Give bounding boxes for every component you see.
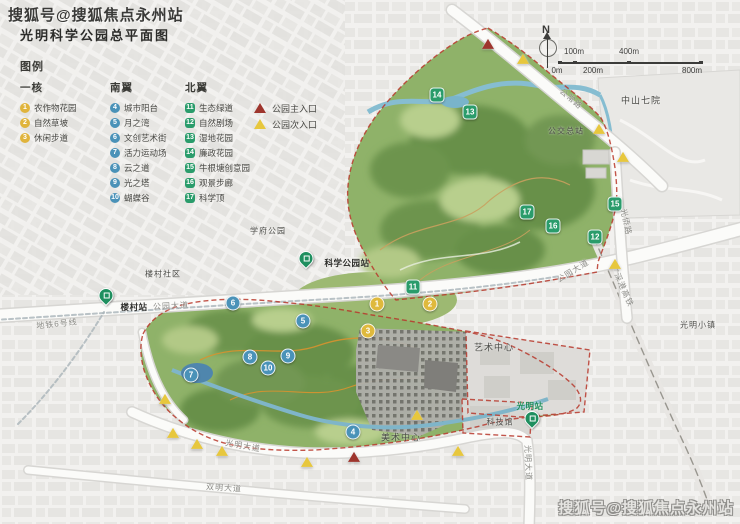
- legend-number-icon: 15: [185, 163, 195, 173]
- legend-item-label: 自然剧场: [199, 117, 233, 129]
- legend-item-label: 月之湾: [124, 117, 150, 129]
- secondary-entrance-icon: [216, 429, 228, 456]
- legend-number-icon: 17: [185, 193, 195, 203]
- park-secondary-entrance: [301, 440, 313, 458]
- map-marker-6: 6: [226, 296, 241, 311]
- map-marker-12: 12: [588, 230, 603, 245]
- map-marker-9: 9: [281, 349, 296, 364]
- scale-bar: 100m400m0m200m800m: [548, 44, 708, 78]
- legend-item-4: 4城市阳台: [110, 100, 167, 115]
- legend-item-2: 2自然草坡: [20, 115, 77, 130]
- scale-tick: [627, 61, 631, 65]
- secondary-entrance-icon: [617, 135, 629, 162]
- secondary-entrance-icon: [191, 422, 203, 449]
- park-secondary-entrance: [216, 429, 228, 447]
- map-label: 楼村社区: [145, 269, 181, 280]
- legend-item-label: 城市阳台: [124, 102, 158, 114]
- legend-number-icon: 14: [185, 148, 195, 158]
- legend-item-label: 科学顶: [199, 192, 225, 204]
- scale-tick: [558, 61, 562, 65]
- scale-label: 0m: [551, 66, 562, 75]
- legend-item-label: 牛根塘创意园: [199, 162, 250, 174]
- legend-number-icon: 4: [110, 103, 120, 113]
- secondary-entrance-icon: [411, 393, 423, 420]
- legend-entrance-sec: 公园次入口: [254, 116, 317, 132]
- main-entrance-icon: [348, 435, 360, 462]
- legend-item-15: 15牛根塘创意园: [185, 160, 250, 175]
- map-label: 地铁6号线: [36, 316, 78, 331]
- secondary-entrance-icon: [167, 411, 179, 438]
- legend-number-icon: 9: [110, 178, 120, 188]
- map-label: 中山七院: [621, 94, 661, 107]
- map-marker-2: 2: [423, 297, 438, 312]
- map-label: 双明大道: [206, 481, 243, 494]
- legend-group-core: 一核1农作物花园2自然草坡3休闲步道: [20, 80, 77, 145]
- map-marker-10: 10: [261, 361, 276, 376]
- park-secondary-entrance: [593, 107, 605, 125]
- park-main-entrance: [348, 435, 360, 453]
- scale-label: 400m: [619, 47, 639, 56]
- map-label: 楼村站: [120, 301, 147, 313]
- map-marker-17: 17: [520, 205, 535, 220]
- legend-number-icon: 11: [185, 103, 195, 113]
- map-label: 公园大道: [153, 300, 190, 313]
- legend-item-14: 14廉政花园: [185, 145, 250, 160]
- page-title: 光明科学公园总平面图: [20, 25, 170, 44]
- scale-label: 200m: [583, 66, 603, 75]
- map-marker-5: 5: [296, 314, 311, 329]
- map-label: 科学公园站: [324, 257, 369, 269]
- park-secondary-entrance: [617, 135, 629, 153]
- secondary-entrance-icon: [452, 429, 464, 456]
- plan-map-screenshot: 搜狐号@搜狐焦点永州站 光明科学公园总平面图 图例 一核1农作物花园2自然草坡3…: [0, 0, 740, 524]
- map-label: 公交总站: [548, 126, 584, 137]
- map-marker-14: 14: [430, 88, 445, 103]
- legend-item-label: 活力运动场: [124, 147, 167, 159]
- map-marker-13: 13: [463, 105, 478, 120]
- legend-item-label: 自然草坡: [34, 117, 68, 129]
- legend-item-1: 1农作物花园: [20, 100, 77, 115]
- legend-item-label: 休闲步道: [34, 132, 68, 144]
- legend-item-7: 7活力运动场: [110, 145, 167, 160]
- secondary-entrance-icon: [301, 440, 313, 467]
- entrance-label: 公园主入口: [272, 102, 317, 115]
- legend-number-icon: 8: [110, 163, 120, 173]
- secondary-entrance-icon: [517, 37, 529, 64]
- map-label: 美术中心: [381, 431, 421, 444]
- north-arrowhead-icon: [543, 32, 551, 39]
- legend-item-8: 8云之道: [110, 160, 167, 175]
- park-secondary-entrance: [167, 411, 179, 429]
- watermark-top: 搜狐号@搜狐焦点永州站: [8, 4, 184, 25]
- legend-number-icon: 12: [185, 118, 195, 128]
- legend-item-label: 蝴蝶谷: [124, 192, 150, 204]
- map-marker-16: 16: [546, 219, 561, 234]
- map-label: 公园大道: [555, 257, 591, 285]
- legend-number-icon: 1: [20, 103, 30, 113]
- legend-item-label: 农作物花园: [34, 102, 77, 114]
- legend-item-5: 5月之湾: [110, 115, 167, 130]
- legend: 图例 一核1农作物花园2自然草坡3休闲步道 南翼4城市阳台5月之湾6文创艺术街7…: [16, 58, 346, 208]
- map-label: 艺术中心: [474, 341, 514, 354]
- legend-entrances: 公园主入口公园次入口: [254, 100, 317, 132]
- park-main-entrance: [482, 22, 494, 40]
- park-secondary-entrance: [411, 393, 423, 411]
- secondary-entrance-icon: [593, 107, 605, 134]
- legend-item-label: 云之道: [124, 162, 150, 174]
- scale-tick: [699, 61, 703, 65]
- legend-number-icon: 10: [110, 193, 120, 203]
- map-label: 光明大道: [522, 445, 534, 481]
- entrance-label: 公园次入口: [272, 118, 317, 131]
- legend-item-label: 光之塔: [124, 177, 150, 189]
- entrance-triangle-icon: [254, 103, 266, 113]
- legend-item-11: 11生态绿道: [185, 100, 250, 115]
- map-marker-3: 3: [361, 324, 376, 339]
- map-label: 公常路: [557, 86, 585, 112]
- map-marker-11: 11: [406, 280, 421, 295]
- scale-tick: [573, 61, 577, 65]
- legend-item-label: 廉政花园: [199, 147, 233, 159]
- map-label: 广深港高铁: [608, 263, 636, 309]
- map-label: 光明大道: [224, 437, 261, 454]
- main-entrance-icon: [482, 22, 494, 49]
- map-label: 光侨路: [618, 208, 634, 237]
- legend-item-12: 12自然剧场: [185, 115, 250, 130]
- legend-number-icon: 13: [185, 133, 195, 143]
- map-label: 科技馆: [487, 417, 514, 428]
- watermark-bottom: 搜狐号@搜狐焦点永州站: [558, 497, 734, 518]
- legend-number-icon: 2: [20, 118, 30, 128]
- legend-item-13: 13湿地花园: [185, 130, 250, 145]
- map-label: 学府公园: [250, 226, 286, 237]
- park-secondary-entrance: [609, 242, 621, 260]
- legend-number-icon: 6: [110, 133, 120, 143]
- legend-entrance-main: 公园主入口: [254, 100, 317, 116]
- map-label: 光明小镇: [680, 320, 716, 331]
- legend-item-16: 16观景步廊: [185, 175, 250, 190]
- entrance-triangle-icon: [254, 119, 266, 129]
- legend-group-north: 北翼11生态绿道12自然剧场13湿地花园14廉政花园15牛根塘创意园16观景步廊…: [185, 80, 250, 205]
- park-secondary-entrance: [452, 429, 464, 447]
- legend-number-icon: 7: [110, 148, 120, 158]
- legend-number-icon: 3: [20, 133, 30, 143]
- map-marker-15: 15: [608, 197, 623, 212]
- legend-item-label: 湿地花园: [199, 132, 233, 144]
- legend-number-icon: 5: [110, 118, 120, 128]
- map-marker-1: 1: [370, 297, 385, 312]
- legend-heading: 图例: [20, 58, 44, 74]
- map-marker-8: 8: [243, 350, 258, 365]
- map-marker-7: 7: [184, 368, 199, 383]
- legend-item-label: 生态绿道: [199, 102, 233, 114]
- park-secondary-entrance: [517, 37, 529, 55]
- legend-group-south: 南翼4城市阳台5月之湾6文创艺术街7活力运动场8云之道9光之塔10蝴蝶谷: [110, 80, 167, 205]
- secondary-entrance-icon: [159, 377, 171, 404]
- legend-item-10: 10蝴蝶谷: [110, 190, 167, 205]
- park-secondary-entrance: [159, 377, 171, 395]
- park-secondary-entrance: [191, 422, 203, 440]
- legend-item-9: 9光之塔: [110, 175, 167, 190]
- legend-item-3: 3休闲步道: [20, 130, 77, 145]
- legend-item-label: 文创艺术街: [124, 132, 167, 144]
- metro-station-pin-icon: [295, 248, 316, 269]
- legend-item-6: 6文创艺术街: [110, 130, 167, 145]
- legend-number-icon: 16: [185, 178, 195, 188]
- scale-label: 800m: [682, 66, 702, 75]
- scale-label: 100m: [564, 47, 584, 56]
- secondary-entrance-icon: [609, 242, 621, 269]
- legend-item-17: 17科学顶: [185, 190, 250, 205]
- legend-item-label: 观景步廊: [199, 177, 233, 189]
- metro-station-pin-icon: [95, 285, 116, 306]
